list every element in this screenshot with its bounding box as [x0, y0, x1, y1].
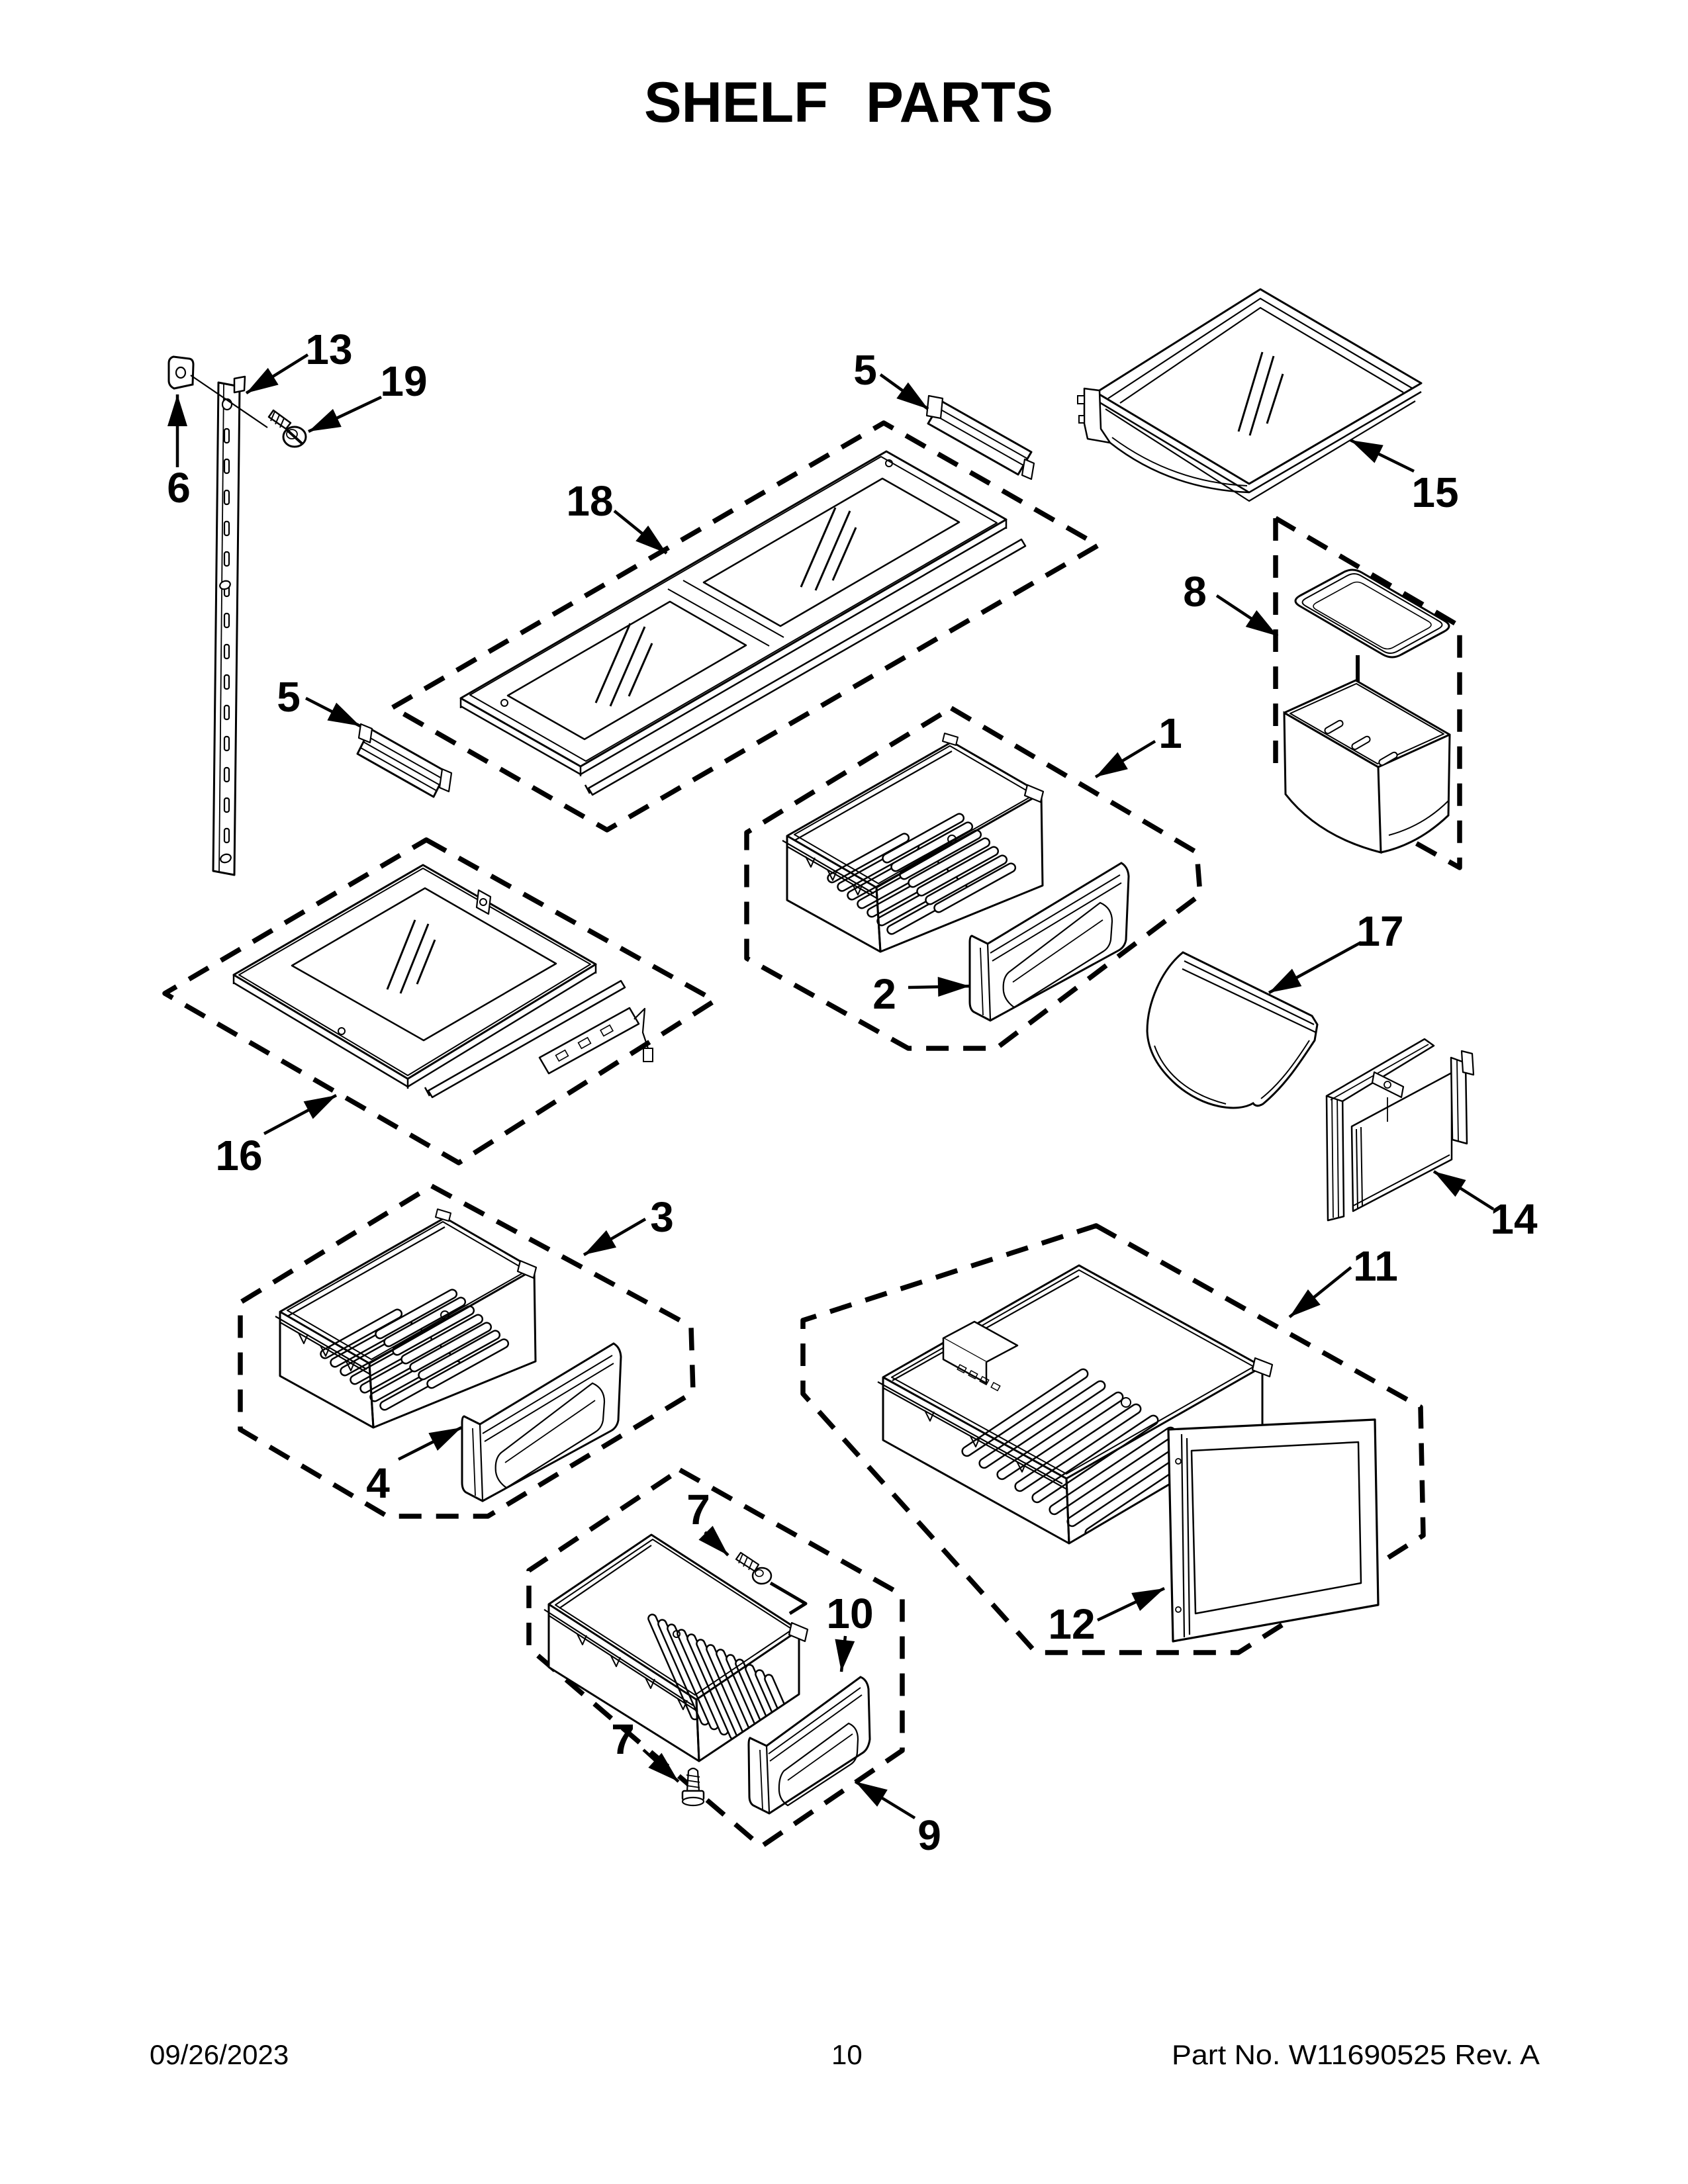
svg-text:SHELF: SHELF	[644, 71, 828, 134]
svg-text:14: 14	[1490, 1195, 1538, 1243]
svg-text:9: 9	[917, 1811, 941, 1859]
svg-text:09/26/2023: 09/26/2023	[150, 2039, 289, 2070]
svg-text:8: 8	[1183, 568, 1207, 615]
svg-text:19: 19	[380, 357, 427, 405]
svg-text:13: 13	[305, 326, 352, 373]
svg-text:3: 3	[650, 1193, 674, 1241]
svg-text:10: 10	[826, 1590, 873, 1637]
svg-text:1: 1	[1158, 709, 1182, 757]
svg-text:PARTS: PARTS	[866, 71, 1053, 134]
svg-text:7: 7	[686, 1486, 710, 1533]
svg-text:5: 5	[277, 673, 301, 721]
svg-text:12: 12	[1048, 1600, 1095, 1648]
svg-text:4: 4	[366, 1459, 390, 1507]
svg-text:7: 7	[611, 1715, 635, 1763]
svg-text:Part No. W11690525 Rev. A: Part No. W11690525 Rev. A	[1172, 2039, 1540, 2070]
svg-text:18: 18	[566, 477, 613, 525]
svg-text:2: 2	[872, 970, 896, 1018]
svg-text:11: 11	[1353, 1242, 1398, 1290]
svg-text:17: 17	[1356, 907, 1403, 955]
svg-text:5: 5	[853, 346, 877, 394]
svg-text:6: 6	[167, 464, 191, 512]
svg-text:16: 16	[215, 1132, 262, 1179]
svg-text:10: 10	[831, 2039, 863, 2070]
svg-text:15: 15	[1411, 469, 1458, 516]
